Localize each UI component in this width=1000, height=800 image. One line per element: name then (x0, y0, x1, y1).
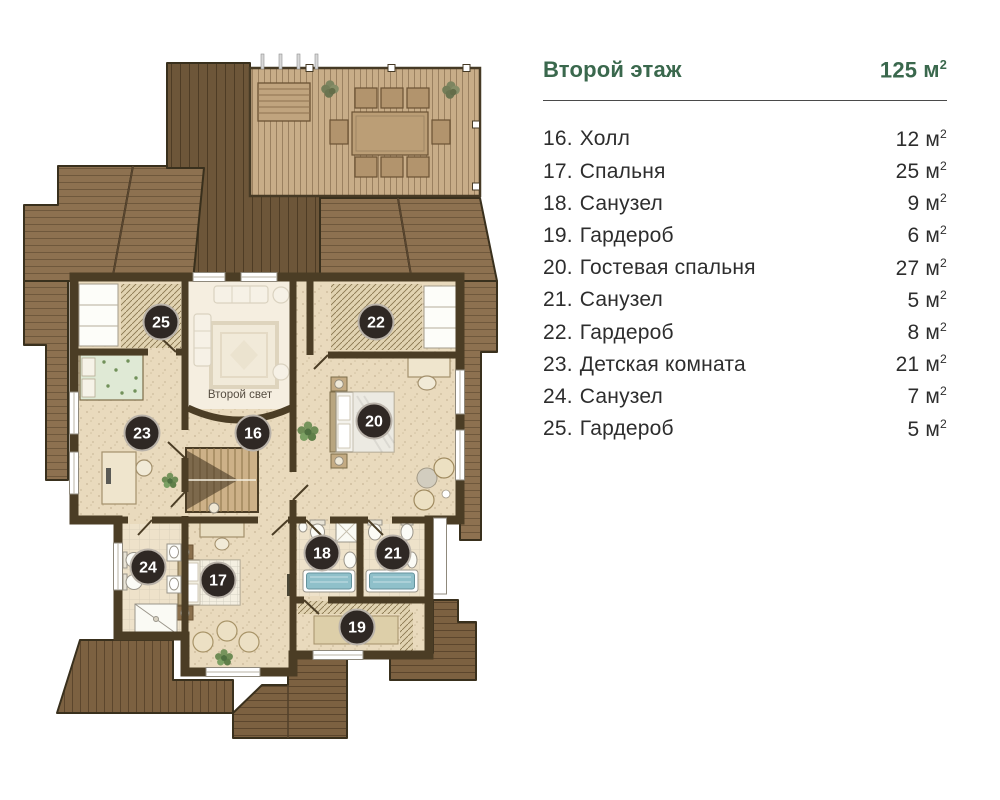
room-badge-label: 18 (313, 546, 331, 563)
room-badge-19: 19 (340, 610, 375, 645)
room-badge-label: 23 (133, 426, 151, 443)
legend-divider (543, 100, 947, 101)
room-area: 12м2 (896, 127, 947, 152)
page: Второй свет 25 22 23 16 20 24 17 18 21 (0, 0, 1000, 800)
legend-row: 25.Гардероб 5м2 (543, 413, 947, 445)
legend-row: 24.Санузел 7м2 (543, 381, 947, 413)
room-badge-label: 19 (348, 620, 366, 637)
room-area: 6м2 (907, 223, 947, 248)
floor-title: Второй этаж (543, 57, 682, 83)
legend: Второй этаж 125м2 16.Холл 12м2 17.Спальн… (543, 57, 947, 445)
room-badge-label: 21 (384, 546, 402, 563)
room-badge-16: 16 (236, 416, 271, 451)
legend-row: 16.Холл 12м2 (543, 123, 947, 155)
terrace-deck (250, 54, 480, 196)
total-area: 125м2 (880, 57, 947, 83)
legend-row: 20.Гостевая спальня 27м2 (543, 252, 947, 284)
room-badge-label: 25 (152, 315, 170, 332)
legend-row: 17.Спальня 25м2 (543, 156, 947, 188)
room-badge-label: 24 (139, 560, 157, 577)
legend-row: 21.Санузел 5м2 (543, 284, 947, 316)
room-badge-label: 17 (209, 573, 227, 590)
room-area: 27м2 (896, 256, 947, 281)
room-badge-21: 21 (376, 536, 411, 571)
room-badge-24: 24 (131, 550, 166, 585)
terrace-lounger (258, 83, 310, 121)
legend-row: 19.Гардероб 6м2 (543, 220, 947, 252)
room-area: 5м2 (907, 417, 947, 442)
floor-plan-image: Второй свет 25 22 23 16 20 24 17 18 21 (0, 0, 520, 800)
room-badge-label: 22 (367, 315, 385, 332)
legend-row: 22.Гардероб 8м2 (543, 316, 947, 348)
room-badge-25: 25 (144, 305, 179, 340)
legend-row: 23.Детская комната 21м2 (543, 349, 947, 381)
room-area: 9м2 (907, 191, 947, 216)
room-badge-17: 17 (201, 563, 236, 598)
room-area: 7м2 (907, 384, 947, 409)
legend-row: 18.Санузел 9м2 (543, 188, 947, 220)
room-badge-label: 16 (244, 426, 262, 443)
legend-rows: 16.Холл 12м2 17.Спальня 25м2 18.Санузел … (543, 123, 947, 445)
room-badge-18: 18 (305, 536, 340, 571)
staircase (186, 448, 258, 513)
room-area: 25м2 (896, 159, 947, 184)
room-area: 8м2 (907, 320, 947, 345)
room-badge-22: 22 (359, 305, 394, 340)
legend-header: Второй этаж 125м2 (543, 57, 947, 83)
room-badge-23: 23 (125, 416, 160, 451)
room-badge-20: 20 (357, 404, 392, 439)
room-badge-label: 20 (365, 414, 383, 431)
room-area: 5м2 (907, 288, 947, 313)
wardrobe-22 (331, 284, 457, 350)
second-light-label: Второй свет (208, 389, 273, 401)
room-area: 21м2 (896, 352, 947, 377)
